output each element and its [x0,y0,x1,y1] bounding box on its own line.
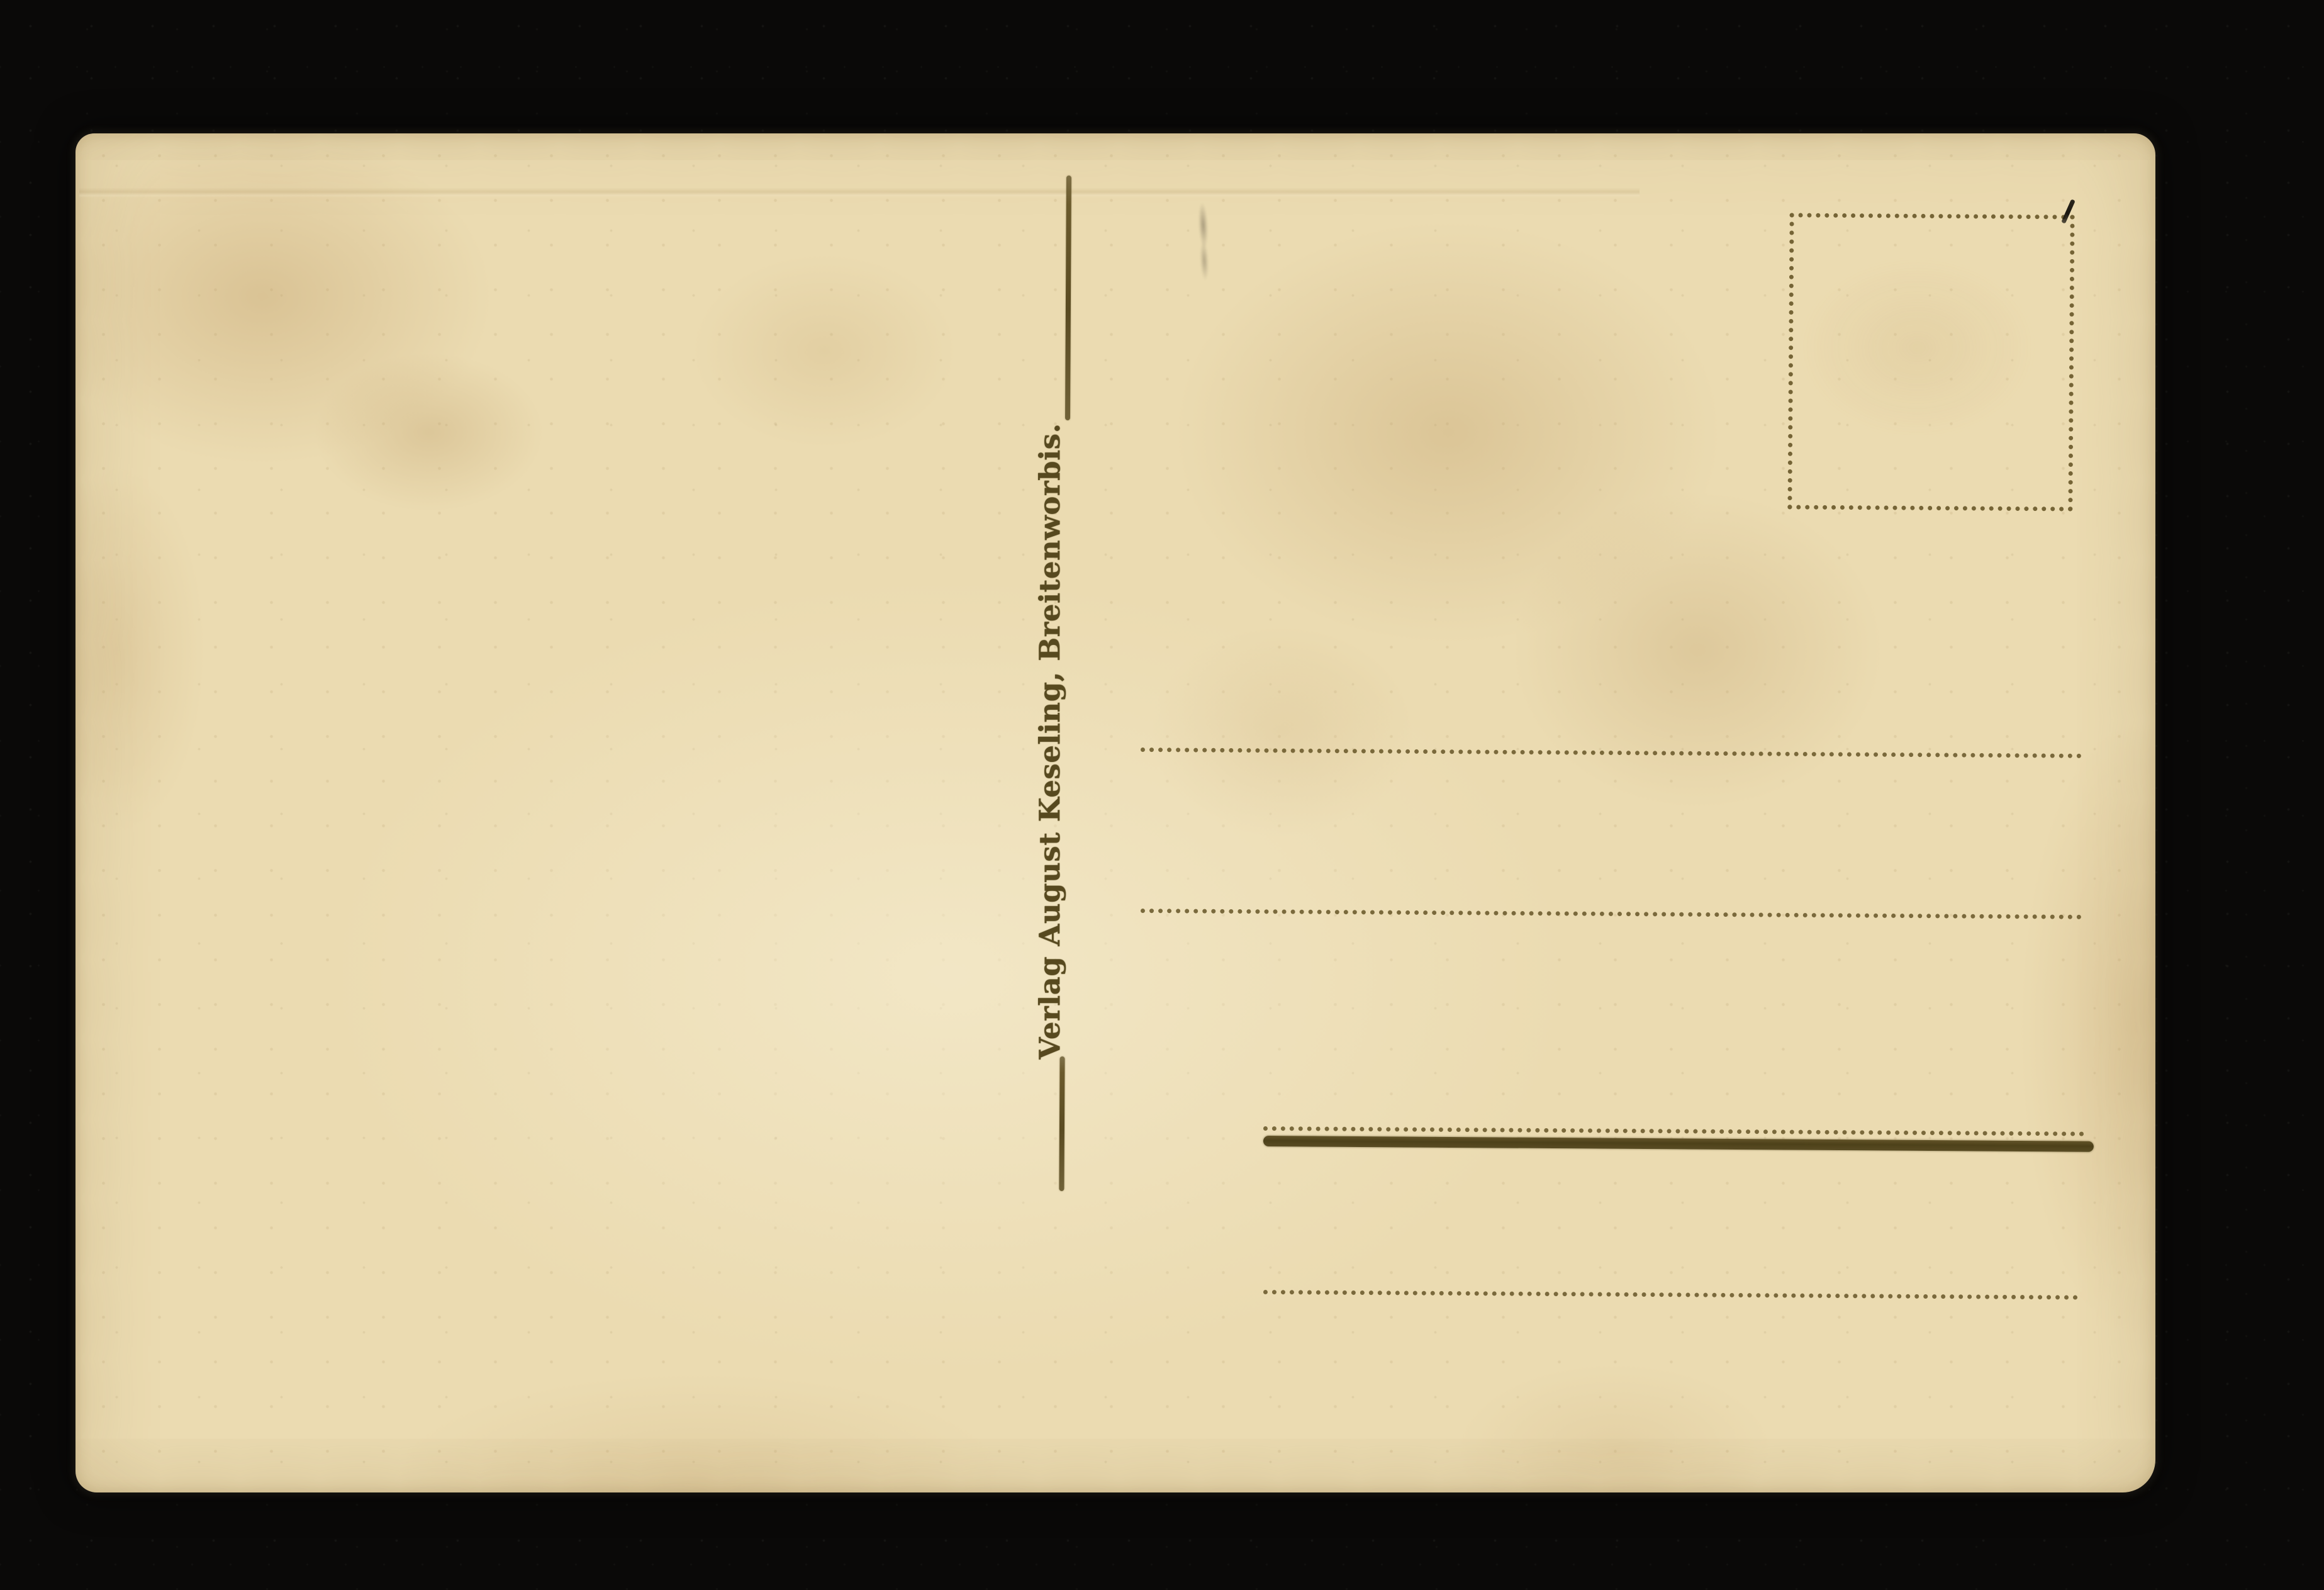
stamp-box [1787,213,2074,511]
publisher-imprint-column: Verlag August Keseling, Breitenworbis. [1031,436,1074,1046]
paper-crease [79,188,1640,198]
address-line-2 [1141,909,2082,919]
address-line-3-rule [1263,1136,2094,1152]
address-line-3-dotted [1263,1126,2084,1136]
pencil-smudge [1194,198,1214,287]
postcard-back: Verlag August Keseling, Breitenworbis. [75,133,2155,1492]
divider-rule-top [1065,176,1071,420]
address-line-1 [1141,747,2082,758]
publisher-imprint: Verlag August Keseling, Breitenworbis. [1031,423,1069,1059]
address-line-4 [1263,1290,2078,1300]
divider-rule-bottom [1059,1056,1064,1191]
scan-background: Verlag August Keseling, Breitenworbis. [0,0,2324,1590]
